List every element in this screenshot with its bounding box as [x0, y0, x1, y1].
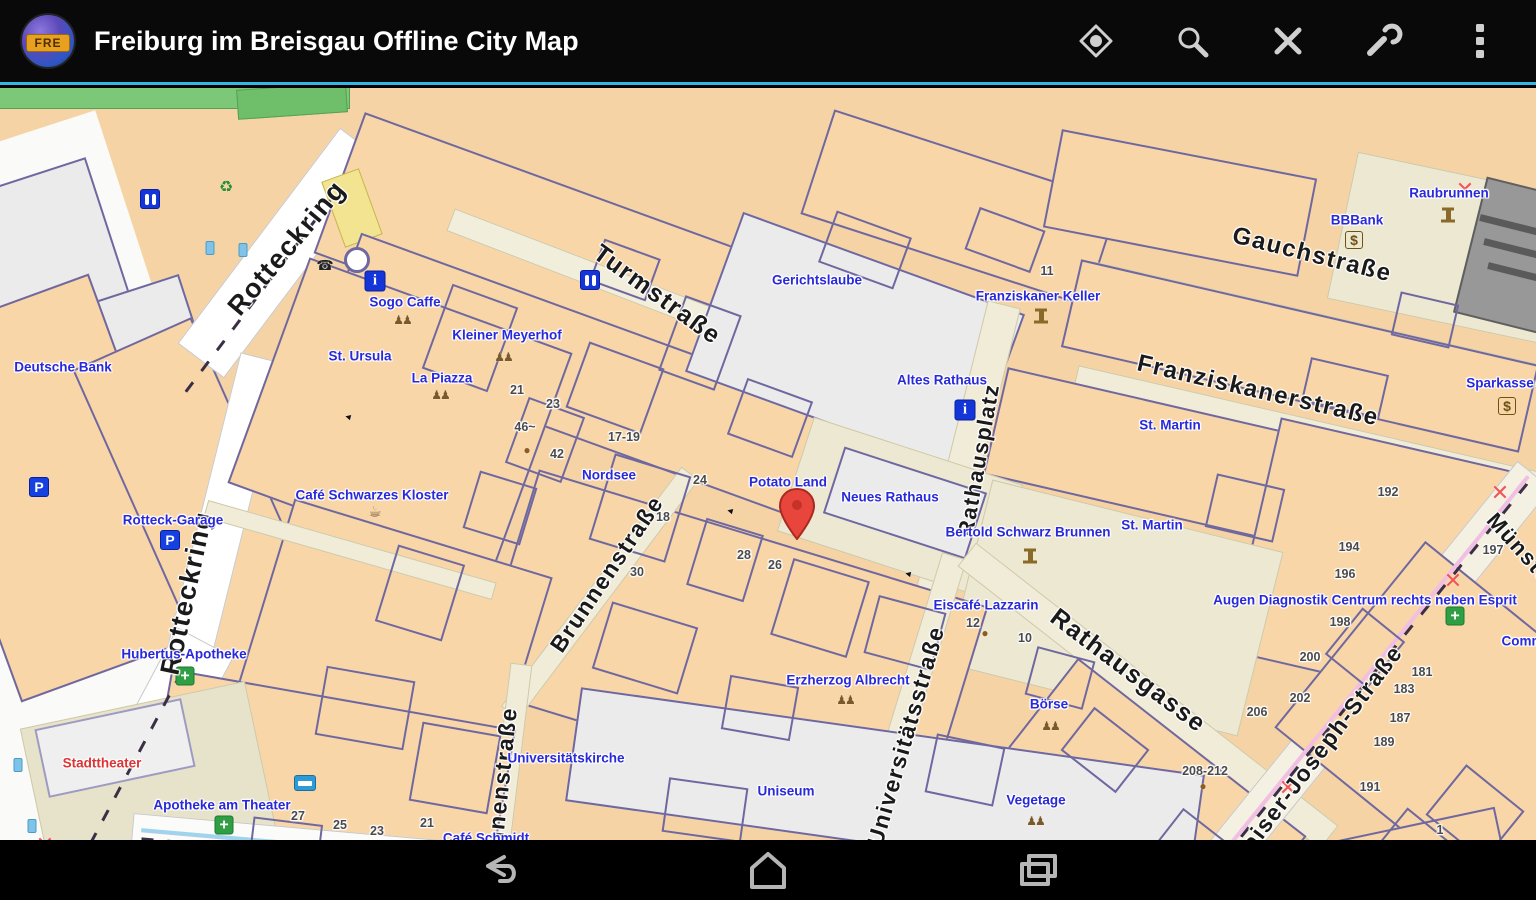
back-button[interactable]	[453, 842, 543, 898]
overflow-button[interactable]	[1432, 0, 1528, 84]
app-icon[interactable]: FRE	[20, 13, 76, 69]
locate-button[interactable]	[1048, 0, 1144, 84]
building-shape	[236, 88, 348, 120]
action-bar-icons	[1048, 0, 1528, 84]
arrow-icon: ◄	[725, 505, 736, 516]
search-button[interactable]	[1144, 0, 1240, 84]
wc-icon	[140, 189, 160, 209]
location-pin-icon	[779, 488, 815, 540]
bus-stop-icon	[206, 241, 215, 255]
house-number: 206	[1247, 705, 1268, 719]
device-screen: FRE Freiburg im Breisgau Offline City Ma…	[0, 0, 1536, 900]
building-shape	[344, 247, 370, 273]
page-title: Freiburg im Breisgau Offline City Map	[94, 26, 1048, 57]
action-bar: FRE Freiburg im Breisgau Offline City Ma…	[0, 0, 1536, 85]
building-shape	[662, 777, 749, 840]
building-shape	[721, 675, 799, 741]
building-shape	[409, 722, 502, 815]
map-canvas[interactable]: RotteckringRotteckringTurmstraßeGauchstr…	[0, 88, 1536, 840]
recycle-icon: ♻	[219, 180, 233, 196]
recents-button[interactable]	[993, 842, 1083, 898]
wine-icon	[1034, 309, 1048, 324]
app-icon-label: FRE	[26, 34, 70, 52]
navigation-bar	[0, 840, 1536, 900]
close-button[interactable]	[1240, 0, 1336, 84]
wrench-button[interactable]	[1336, 0, 1432, 84]
home-button[interactable]	[723, 842, 813, 898]
